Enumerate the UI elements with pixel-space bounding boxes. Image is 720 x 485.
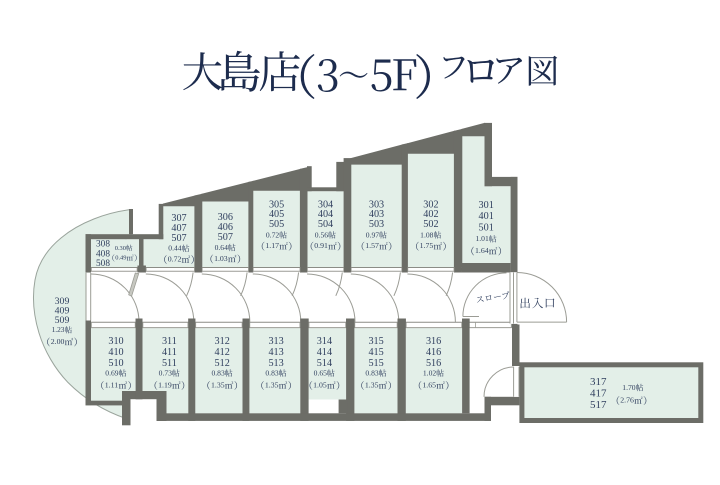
svg-text:1.75: 1.75 — [420, 241, 434, 250]
svg-text:504: 504 — [318, 219, 333, 230]
svg-text:1.08: 1.08 — [420, 230, 433, 239]
svg-text:516: 516 — [426, 358, 441, 369]
svg-text:414: 414 — [317, 347, 332, 358]
svg-text:0.30: 0.30 — [115, 245, 126, 252]
svg-text:1.03: 1.03 — [214, 254, 228, 263]
svg-text:1.35: 1.35 — [265, 380, 279, 389]
svg-text:313: 313 — [268, 336, 283, 347]
svg-text:501: 501 — [479, 222, 494, 233]
svg-text:1.35: 1.35 — [365, 380, 379, 389]
svg-text:1.05: 1.05 — [313, 380, 327, 389]
svg-text:408: 408 — [96, 249, 110, 259]
svg-text:0.83: 0.83 — [265, 368, 278, 377]
svg-text:1.23: 1.23 — [52, 325, 65, 334]
svg-text:1.01: 1.01 — [475, 234, 488, 243]
svg-text:514: 514 — [317, 358, 332, 369]
svg-text:401: 401 — [479, 211, 494, 222]
svg-text:0.65: 0.65 — [314, 368, 327, 377]
svg-text:411: 411 — [162, 347, 177, 358]
svg-text:503: 503 — [369, 219, 384, 230]
svg-text:511: 511 — [162, 358, 177, 369]
svg-text:510: 510 — [108, 358, 123, 369]
svg-text:1.11: 1.11 — [105, 380, 118, 389]
svg-text:315: 315 — [368, 336, 383, 347]
svg-text:311: 311 — [162, 336, 177, 347]
svg-text:0.69: 0.69 — [105, 368, 118, 377]
svg-text:0.56: 0.56 — [315, 230, 328, 239]
svg-text:416: 416 — [426, 347, 441, 358]
svg-text:312: 312 — [215, 336, 230, 347]
svg-text:0.49: 0.49 — [115, 254, 126, 261]
svg-text:502: 502 — [423, 219, 438, 230]
svg-text:0.72: 0.72 — [266, 230, 279, 239]
svg-text:310: 310 — [108, 336, 123, 347]
svg-text:515: 515 — [368, 358, 383, 369]
svg-text:0.91: 0.91 — [314, 241, 328, 250]
svg-text:507: 507 — [218, 232, 233, 243]
svg-text:0.97: 0.97 — [366, 230, 379, 239]
svg-text:507: 507 — [171, 233, 186, 244]
svg-text:0.83: 0.83 — [365, 368, 378, 377]
svg-text:517: 517 — [590, 399, 607, 411]
svg-text:508: 508 — [96, 259, 110, 269]
svg-text:0.83: 0.83 — [211, 368, 224, 377]
svg-text:512: 512 — [215, 358, 230, 369]
svg-text:1.64: 1.64 — [475, 246, 489, 255]
svg-text:0.64: 0.64 — [215, 243, 228, 252]
svg-text:505: 505 — [269, 219, 284, 230]
svg-text:316: 316 — [426, 336, 441, 347]
svg-text:513: 513 — [268, 358, 283, 369]
svg-text:1.57: 1.57 — [365, 241, 379, 250]
svg-text:1.65: 1.65 — [422, 380, 436, 389]
svg-text:0.44: 0.44 — [168, 244, 181, 253]
svg-text:417: 417 — [590, 388, 607, 400]
svg-text:0.73: 0.73 — [159, 368, 172, 377]
svg-text:308: 308 — [96, 239, 110, 249]
svg-text:412: 412 — [215, 347, 230, 358]
svg-text:317: 317 — [590, 376, 607, 388]
svg-text:1.70: 1.70 — [622, 383, 635, 392]
svg-text:415: 415 — [368, 347, 383, 358]
svg-text:2.00: 2.00 — [51, 337, 65, 346]
svg-text:1.17: 1.17 — [265, 241, 279, 250]
svg-text:0.72: 0.72 — [168, 254, 182, 263]
svg-text:1.19: 1.19 — [158, 380, 172, 389]
svg-text:301: 301 — [479, 200, 494, 211]
svg-text:314: 314 — [317, 336, 332, 347]
svg-text:1.02: 1.02 — [423, 368, 436, 377]
svg-text:413: 413 — [268, 347, 283, 358]
svg-text:2.76: 2.76 — [620, 396, 634, 405]
svg-text:1.35: 1.35 — [211, 380, 225, 389]
svg-text:410: 410 — [108, 347, 123, 358]
